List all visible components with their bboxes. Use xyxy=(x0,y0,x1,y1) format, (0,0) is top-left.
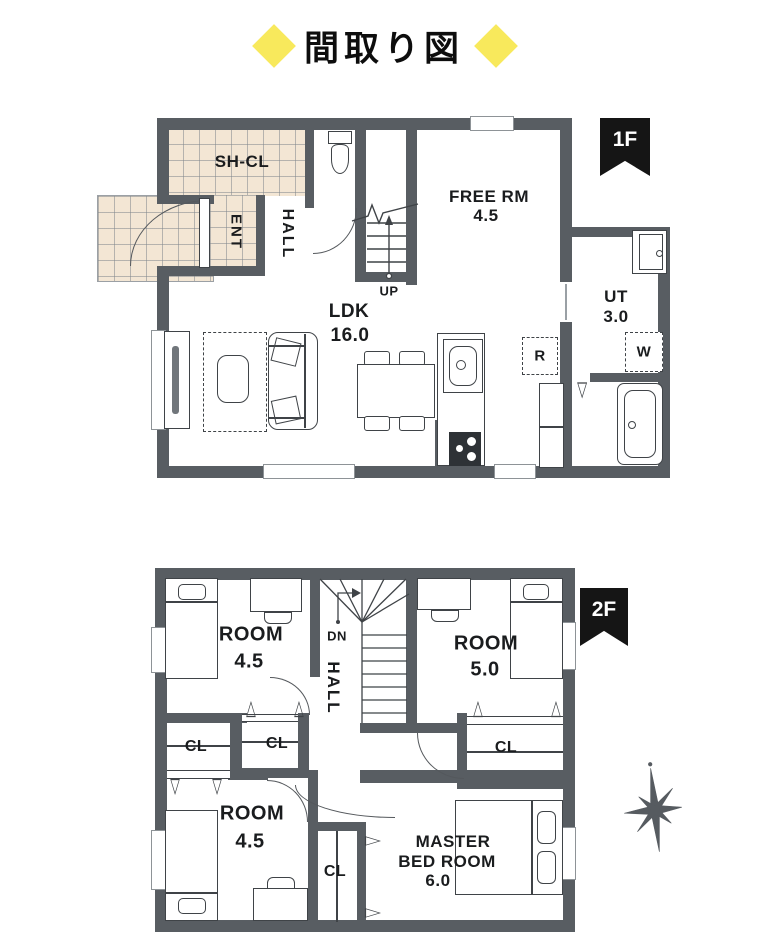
window xyxy=(494,464,536,479)
dining-chair xyxy=(399,416,425,431)
stove-burner xyxy=(466,451,477,462)
wall xyxy=(157,266,265,276)
pillow xyxy=(537,811,556,844)
window xyxy=(561,827,576,880)
stove-burner xyxy=(466,436,477,447)
folding-door-icon: △ xyxy=(551,698,561,719)
room-label-nw: ROOM xyxy=(219,624,283,647)
desk xyxy=(417,578,471,610)
vanity-faucet xyxy=(656,250,663,257)
bed-line xyxy=(511,601,562,603)
window xyxy=(561,622,576,670)
room-size-nw: 4.5 xyxy=(234,651,263,674)
coffee-table xyxy=(217,355,249,403)
stairs-up-label: UP xyxy=(379,284,398,299)
closet-label-e: CL xyxy=(495,739,517,757)
closet-label-w: CL xyxy=(185,738,207,756)
chair xyxy=(431,610,459,622)
folding-door-icon: △ xyxy=(577,381,587,402)
room-size-ldk: 16.0 xyxy=(331,325,370,347)
sofa-armrest-line xyxy=(269,417,304,419)
room-label-ldk: LDK xyxy=(329,301,370,323)
desk xyxy=(253,888,308,921)
closet-label-s: CL xyxy=(324,863,346,881)
room-size-sw: 4.5 xyxy=(235,831,264,854)
folding-door-icon: △ xyxy=(170,778,180,799)
wall xyxy=(305,128,314,208)
room-label-ut: UT xyxy=(604,287,628,307)
folding-door-icon: △ xyxy=(212,778,222,799)
floor-flag-1f: 1F xyxy=(600,118,650,176)
dining-table xyxy=(357,364,435,418)
wall xyxy=(560,118,572,282)
toilet-door-arc xyxy=(313,208,357,254)
room-size-ne: 5.0 xyxy=(470,659,499,682)
folding-door-icon: △ xyxy=(473,698,483,719)
window xyxy=(151,627,166,673)
wall xyxy=(228,770,268,780)
faucet xyxy=(456,360,466,370)
toilet-tank xyxy=(328,131,352,144)
room-label-master-2: BED ROOM xyxy=(398,852,496,872)
stove xyxy=(449,432,481,466)
wall xyxy=(157,466,670,478)
room-label-free-rm: FREE RM xyxy=(449,187,529,207)
tv xyxy=(172,346,179,414)
room-label-hall-2f: HALL xyxy=(323,661,343,714)
wall xyxy=(256,195,265,275)
dining-chair xyxy=(364,416,390,431)
window xyxy=(263,464,355,479)
pillow xyxy=(178,584,206,600)
stairs-down-label: DN xyxy=(327,629,347,644)
room-label-ent: ENT xyxy=(228,214,245,250)
pillow xyxy=(523,584,549,600)
cabinet-shelf-line xyxy=(540,426,563,428)
folding-door-icon: △ xyxy=(364,908,385,918)
folding-door-icon: △ xyxy=(364,836,385,846)
closet-label-m: CL xyxy=(266,735,288,753)
window xyxy=(151,830,166,890)
washer-label: W xyxy=(637,344,652,361)
window xyxy=(470,116,514,131)
sliding-door-line xyxy=(565,284,567,320)
room-label-sw: ROOM xyxy=(220,803,284,826)
floor-flag-1f-label: 1F xyxy=(613,128,638,151)
bed-line xyxy=(531,801,533,894)
pillow xyxy=(537,851,556,884)
toilet-bowl xyxy=(331,144,349,174)
wall xyxy=(157,118,169,195)
room-size-free-rm: 4.5 xyxy=(473,206,498,226)
pillow xyxy=(178,898,206,914)
stove-burner xyxy=(455,444,464,453)
floor-flag-2f-label: 2F xyxy=(592,598,617,621)
bed-line xyxy=(166,892,217,894)
page-title: 間取り図 xyxy=(304,21,464,72)
room-label-shcl: SH-CL xyxy=(215,152,269,172)
room-size-master: 6.0 xyxy=(425,871,450,891)
folding-door-icon: △ xyxy=(294,698,304,719)
fridge-label: R xyxy=(534,348,545,365)
floor-flag-2f: 2F xyxy=(580,588,628,646)
room-label-master-1: MASTER xyxy=(416,832,491,852)
diamond-icon xyxy=(252,24,296,68)
compass-icon xyxy=(612,760,698,860)
desk xyxy=(250,578,302,612)
diamond-icon xyxy=(474,24,518,68)
room-size-ut: 3.0 xyxy=(603,307,628,327)
bathtub-drain xyxy=(628,421,636,429)
floor-plan-page: 間取り図 xyxy=(0,0,768,952)
wall xyxy=(590,373,670,382)
chair xyxy=(264,612,292,624)
entrance-door-leaf xyxy=(199,198,210,268)
sofa-armrest-line xyxy=(269,345,304,347)
room-label-ne: ROOM xyxy=(454,633,518,656)
sofa-back-line xyxy=(304,334,306,428)
folding-door-icon: △ xyxy=(246,698,256,719)
bed-line xyxy=(166,601,217,603)
door-arc xyxy=(270,677,310,715)
wall xyxy=(360,770,575,783)
room-label-hall-1f: HALL xyxy=(278,209,296,260)
